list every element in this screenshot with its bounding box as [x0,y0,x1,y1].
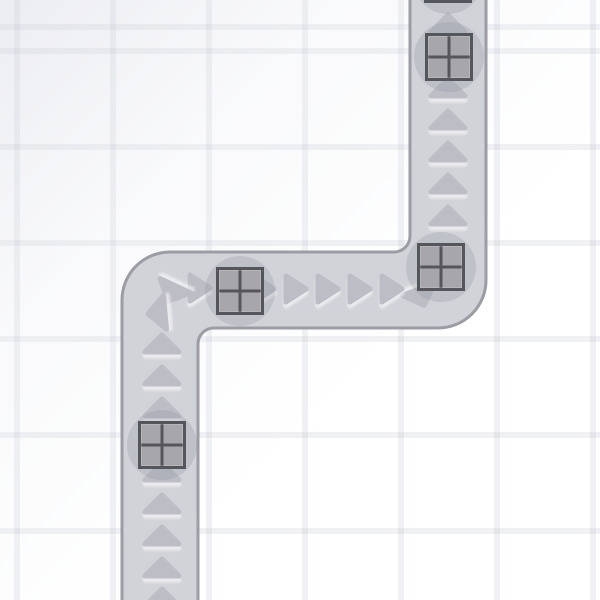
crate[interactable] [425,33,473,81]
crate[interactable] [138,421,186,469]
track-layer [0,0,600,600]
crate[interactable] [424,0,472,3]
game-canvas[interactable] [0,0,600,600]
crate[interactable] [417,243,465,291]
crate[interactable] [216,267,264,315]
